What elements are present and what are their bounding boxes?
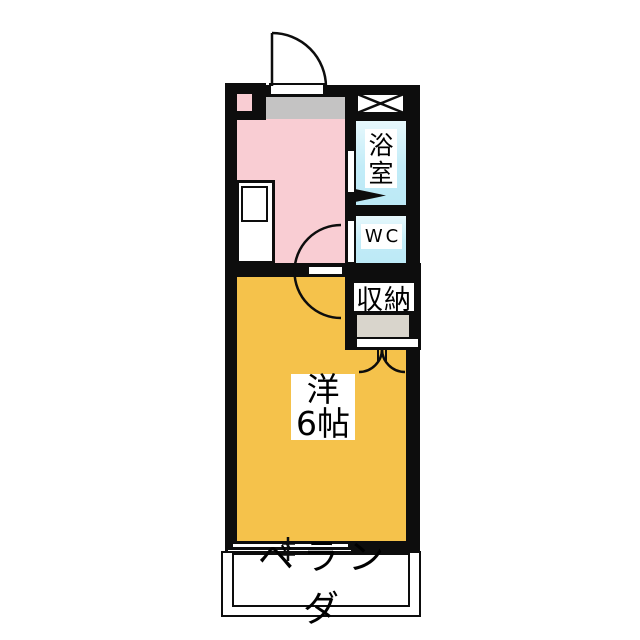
- main-room-label-line1: 洋: [296, 373, 350, 407]
- wc-label: WC: [362, 226, 401, 247]
- balcony-label: ベランダ: [234, 528, 408, 632]
- bathroom-label-box: 浴室: [365, 129, 397, 188]
- bathroom-label: 浴室: [365, 130, 397, 188]
- wc-door-opening: [346, 219, 356, 264]
- kitchen-nook-square: [237, 94, 252, 111]
- balcony-label-box: ベランダ: [232, 553, 410, 607]
- closet-door-threshold: [355, 337, 420, 349]
- wall-bathroom-wc-divider: [345, 205, 420, 216]
- main-room-label-box: 洋 6帖: [291, 374, 355, 440]
- pipe-space-xbox: [356, 93, 405, 114]
- wc-label-box: WC: [361, 224, 402, 249]
- floorplan-canvas: ベランダ 浴室 WC 収納 洋 6帖: [0, 0, 640, 640]
- closet-floor: [357, 315, 409, 337]
- room-door-opening: [307, 265, 344, 276]
- entrance-door-arc-icon: [272, 33, 326, 87]
- wall-left: [225, 85, 237, 553]
- main-room-label-line2: 6帖: [296, 407, 350, 441]
- bathroom-door-opening: [346, 149, 356, 194]
- closet-label: 収納: [356, 278, 412, 317]
- entrance-door-leaf-closed: [269, 83, 325, 96]
- kitchen-sink: [241, 186, 268, 222]
- closet-label-box: 収納: [352, 281, 416, 313]
- main-room-label: 洋 6帖: [296, 373, 350, 441]
- entrance-floor: [266, 95, 345, 119]
